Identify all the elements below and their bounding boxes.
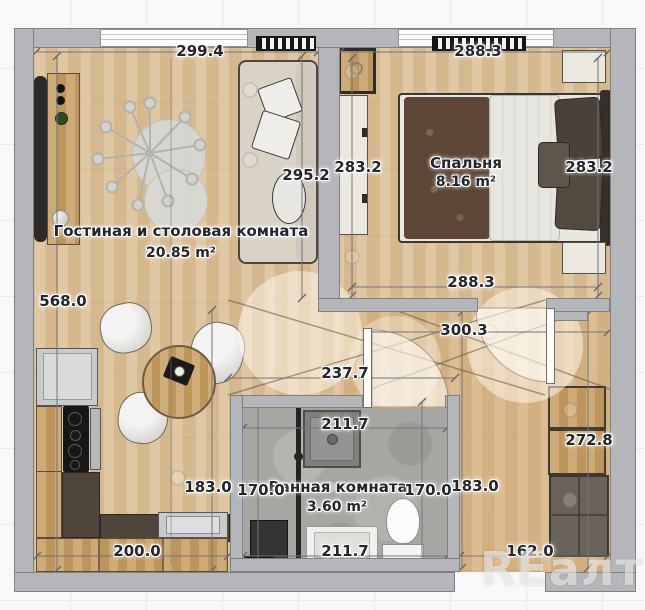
dim-left-total: 568.0 [39, 292, 86, 310]
bathroom-door-arc [372, 330, 449, 407]
window [100, 29, 248, 47]
living-room-label: Гостиная и столовая комната [54, 222, 309, 240]
dim-kitchen-bottom: 200.0 [113, 542, 160, 560]
bedroom-door-leaf [546, 308, 555, 384]
dim-bath-left: 170.0 [237, 481, 284, 499]
bath-wall-bottom [230, 558, 460, 572]
dim-bath-right: 170.0 [404, 481, 451, 499]
dim-bedroom-right: 283.2 [565, 158, 612, 176]
bedroom-area: 8.16 m² [436, 174, 496, 190]
dim-bath-top: 211.7 [321, 415, 368, 433]
wall-below-bedroom-left [318, 298, 478, 312]
wall-right [610, 28, 636, 592]
dim-bedroom-left: 283.2 [334, 158, 381, 176]
living-room-area: 20.85 m² [146, 245, 216, 261]
wall-bottom-left [14, 572, 455, 592]
dim-kitchen-right: 183.0 [184, 478, 231, 496]
dim-living-right: 295.2 [282, 166, 329, 184]
wall-below-bedroom-right [546, 298, 610, 312]
dim-bedroom-top: 288.3 [454, 42, 501, 60]
dim-bedroom-bottom: 288.3 [447, 273, 494, 291]
watermark: REалт [480, 542, 643, 596]
bedroom-label: Спальня [430, 154, 502, 172]
bathroom-area: 3.60 m² [307, 499, 367, 515]
dim-hall-right: 183.0 [451, 477, 498, 495]
dim-closet-right: 272.8 [565, 431, 612, 449]
dim-bath-bottom: 211.7 [321, 542, 368, 560]
dim-living-top: 299.4 [176, 42, 223, 60]
wall-left [14, 28, 34, 592]
bathroom-label: Ванная комната [268, 478, 407, 496]
dim-hall-mid: 237.7 [321, 364, 368, 382]
dandelion-decor-icon [93, 98, 206, 211]
radiator [256, 36, 316, 51]
bath-wall-top-left [230, 395, 363, 408]
floor-plan: Гостиная и столовая комната 20.85 m² Спа… [0, 0, 645, 610]
dim-hall-top: 300.3 [440, 321, 487, 339]
